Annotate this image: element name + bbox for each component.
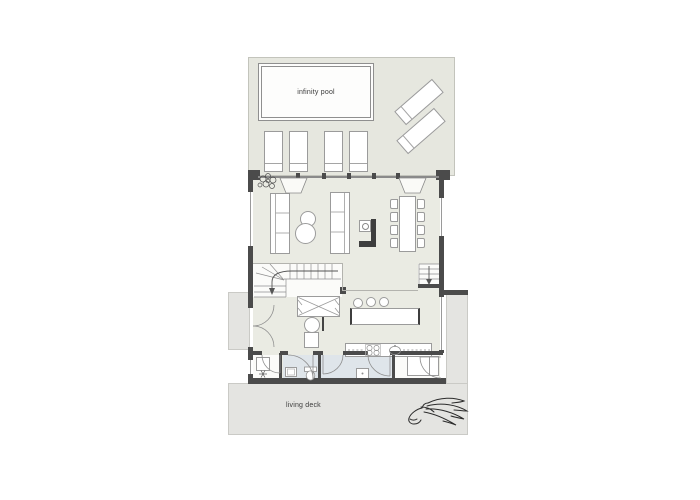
coffee-table	[295, 223, 316, 244]
seat	[304, 332, 319, 348]
lamp-post	[322, 317, 324, 331]
wall-partition	[279, 353, 282, 382]
wall-segment	[441, 290, 468, 295]
window	[441, 297, 443, 350]
floor-plan: infinity pool	[0, 0, 700, 500]
infinity-pool: infinity pool	[258, 63, 374, 121]
bar-stool	[353, 298, 363, 308]
sofa	[330, 192, 350, 254]
wall-post	[322, 173, 326, 179]
kitchen-island	[350, 308, 420, 325]
wall-segment	[418, 284, 441, 288]
lounger-divider	[265, 163, 282, 164]
shower-tray	[256, 357, 270, 371]
pool-label: infinity pool	[297, 89, 335, 96]
lounger-divider	[325, 163, 342, 164]
wall-segment	[248, 246, 253, 308]
level-edge	[342, 290, 418, 291]
wall-segment	[390, 351, 443, 355]
living-deck-label: living deck	[286, 402, 321, 409]
window	[250, 360, 252, 374]
sofa	[270, 193, 290, 254]
sun-lounger	[264, 131, 283, 172]
dining-chair	[390, 212, 398, 222]
wall-partition	[392, 353, 395, 382]
fireplace-wall	[359, 241, 376, 247]
dining-chair	[390, 199, 398, 209]
deck-left	[228, 292, 250, 350]
sun-lounger	[324, 131, 343, 172]
dining-chair	[390, 225, 398, 235]
window	[441, 198, 443, 236]
fireplace-flue	[362, 223, 369, 230]
bar-stool	[379, 297, 389, 307]
wall-post	[296, 173, 300, 179]
living-deck	[228, 383, 468, 435]
wc-sink	[285, 367, 297, 377]
window	[250, 192, 252, 246]
dining-chair	[417, 238, 425, 248]
sun-lounger	[289, 131, 308, 172]
dining-chair	[417, 212, 425, 222]
dining-table	[399, 196, 416, 252]
dining-chair	[417, 199, 425, 209]
wall-segment	[248, 172, 253, 192]
stairwell-floor	[253, 263, 342, 297]
wall-segment	[253, 351, 262, 355]
bench-divider	[429, 357, 430, 375]
wall-partition	[318, 353, 321, 382]
wall-segment	[343, 351, 368, 355]
side-table	[304, 317, 320, 333]
bar-stool	[366, 297, 376, 307]
wall-post	[347, 173, 351, 179]
prep-table	[297, 296, 340, 317]
dining-chair	[390, 238, 398, 248]
stairwell-floor	[418, 264, 440, 286]
wall-segment	[439, 172, 444, 198]
level-edge	[342, 263, 343, 290]
lounger-divider	[290, 163, 307, 164]
deck-right	[446, 292, 468, 384]
lounger-divider	[350, 163, 367, 164]
dining-chair	[417, 225, 425, 235]
lounger-divider	[401, 106, 412, 119]
bench	[407, 356, 439, 376]
sun-lounger	[349, 131, 368, 172]
lounger-divider	[403, 135, 414, 148]
wall-post	[372, 173, 376, 179]
wall-post	[396, 173, 400, 179]
level-edge	[253, 263, 342, 264]
